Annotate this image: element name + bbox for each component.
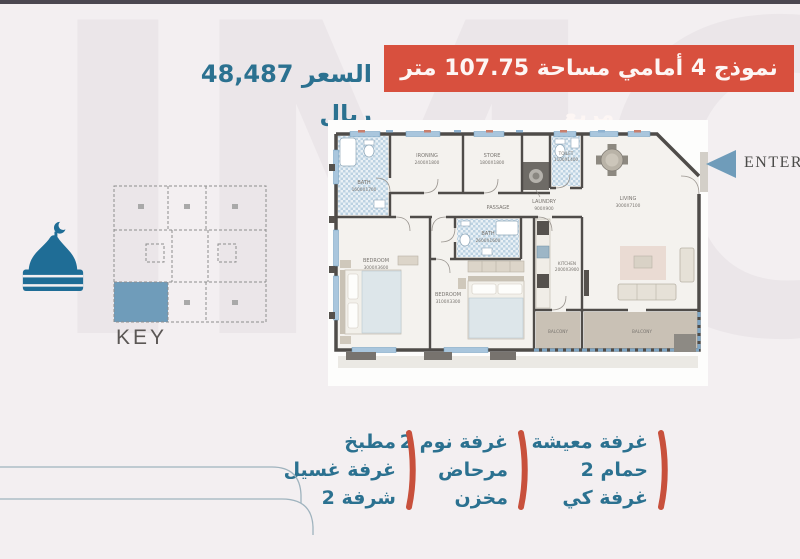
room-dims-bedroom1: 3000X3600 xyxy=(364,265,389,271)
key-diagram xyxy=(110,182,270,331)
feature-bracket xyxy=(404,430,416,510)
enter-label: ENTER xyxy=(744,154,800,172)
feature-item: غرفة كي xyxy=(520,484,648,512)
price-label: السعر 48,487 ريال xyxy=(140,54,372,94)
enter-arrow-icon xyxy=(706,150,736,178)
decorative-curves xyxy=(0,455,320,559)
bed-icon-1 xyxy=(340,260,401,344)
room-label-store: STORE xyxy=(484,153,501,159)
kitchen-counter-icon xyxy=(536,219,550,308)
wardrobe-icon xyxy=(468,261,524,272)
bed-icon-2 xyxy=(458,276,524,339)
key-label: KEY xyxy=(116,326,167,350)
room-label-bath2: BATH xyxy=(481,231,495,237)
room-dims-store: 1800X1800 xyxy=(480,160,505,166)
room-label-balcony2: BALCONY xyxy=(632,329,652,334)
room-label-bedroom1: BEDROOM xyxy=(363,258,389,264)
room-dims-laundry: 900X900 xyxy=(534,206,554,212)
feature-bracket xyxy=(656,430,668,510)
feature-item: حمام 2 xyxy=(520,456,648,484)
ground-strip xyxy=(338,356,698,368)
feature-bracket xyxy=(516,430,528,510)
title-banner: نموذج 4 أمامي مساحة 107.75 متر مربع xyxy=(384,45,794,92)
room-label-living: LIVING xyxy=(620,196,637,202)
washer-icon xyxy=(523,162,549,190)
room-label-kitchen: KITCHEN xyxy=(558,261,576,266)
room-dims-toilet: 1100X1400 xyxy=(554,157,579,162)
room-dims-living: 3000X7100 xyxy=(616,203,641,209)
floor-plan: BATH 1600X1700 IRONING 2400X1800 STORE 1… xyxy=(328,120,708,386)
room-dims-bedroom2: 3100X3300 xyxy=(436,299,461,305)
room-dims-bath1: 1600X1700 xyxy=(352,187,377,193)
floor-plan-drawing: BATH 1600X1700 IRONING 2400X1800 STORE 1… xyxy=(328,120,708,386)
room-dims-bath2: 2600X1600 xyxy=(476,238,501,244)
room-label-bedroom2: BEDROOM xyxy=(435,292,461,298)
room-label-passage: PASSAGE xyxy=(487,205,510,211)
features-column-1: غرفة معيشة حمام 2 غرفة كي xyxy=(520,428,668,512)
feature-item: غرفة معيشة xyxy=(520,428,648,456)
room-label-bath1: BATH xyxy=(357,180,371,186)
key-unit-highlight xyxy=(114,282,168,322)
room-dims-ironing: 2400X1800 xyxy=(415,160,440,166)
room-label-ironing: IRONING xyxy=(416,153,438,159)
room-label-balcony1: BALCONY xyxy=(548,329,568,334)
room-label-toilet: TOILET xyxy=(558,151,574,156)
feature-item: مطبخ xyxy=(282,428,396,456)
dresser-icon xyxy=(398,256,418,265)
room-dims-kitchen: 2000X3900 xyxy=(555,267,580,272)
room-label-laundry: LAUNDRY xyxy=(532,199,557,205)
mosque-icon xyxy=(18,216,88,296)
